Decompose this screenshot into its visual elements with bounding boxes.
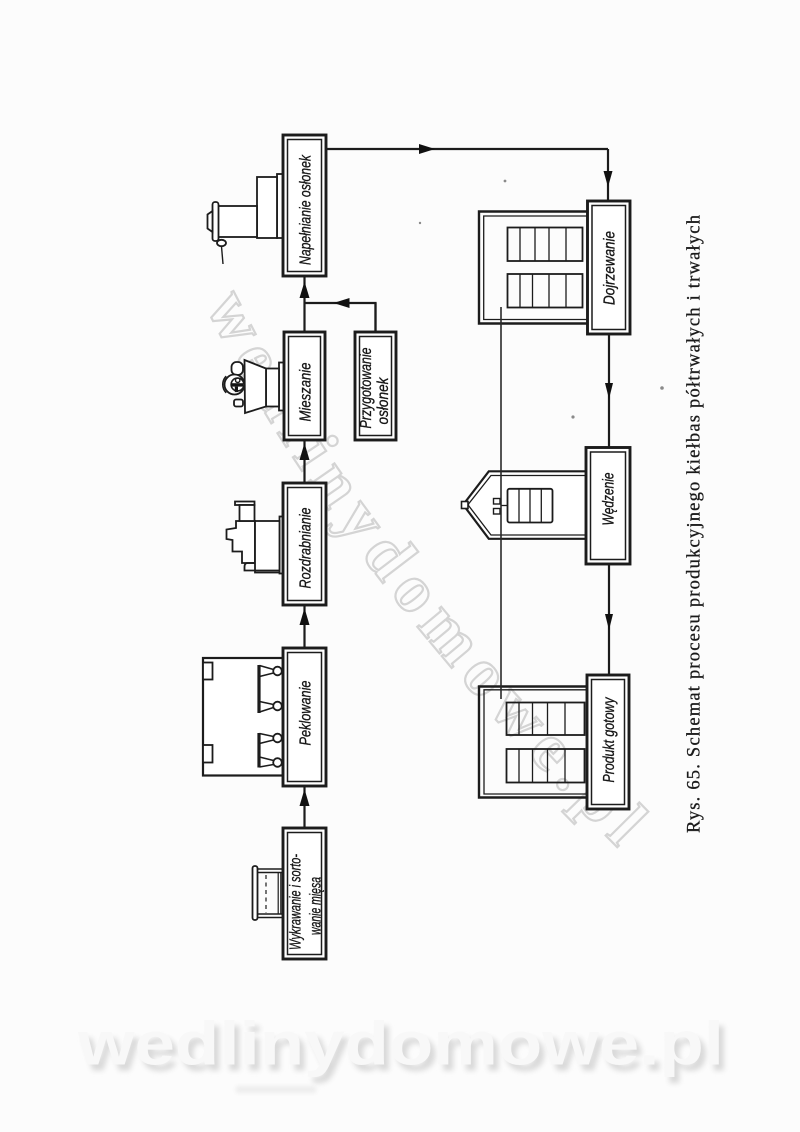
svg-text:Mieszanie: Mieszanie — [298, 362, 315, 421]
svg-text:Przygotowanie: Przygotowanie — [358, 347, 375, 428]
svg-text:wedlinydomowe.pl: wedlinydomowe.pl — [77, 1010, 724, 1078]
svg-text:Rys. 65. Schemat procesu produ: Rys. 65. Schemat procesu produkcyjnego k… — [685, 215, 705, 833]
svg-text:wanie mięsa: wanie mięsa — [308, 877, 325, 935]
svg-text:osłonek: osłonek — [375, 376, 392, 424]
svg-text:Wędzenie: Wędzenie — [601, 472, 618, 525]
svg-text:Dojrzewanie: Dojrzewanie — [602, 231, 619, 305]
svg-text:Produkt gotowy: Produkt gotowy — [601, 697, 618, 783]
svg-text:Wykrawanie i sorto-: Wykrawanie i sorto- — [288, 854, 305, 950]
svg-text:Rozdrabnianie: Rozdrabnianie — [298, 507, 315, 588]
svg-text:Peklowanie: Peklowanie — [298, 680, 315, 745]
svg-text:Napełnianie osłonek: Napełnianie osłonek — [298, 154, 315, 265]
